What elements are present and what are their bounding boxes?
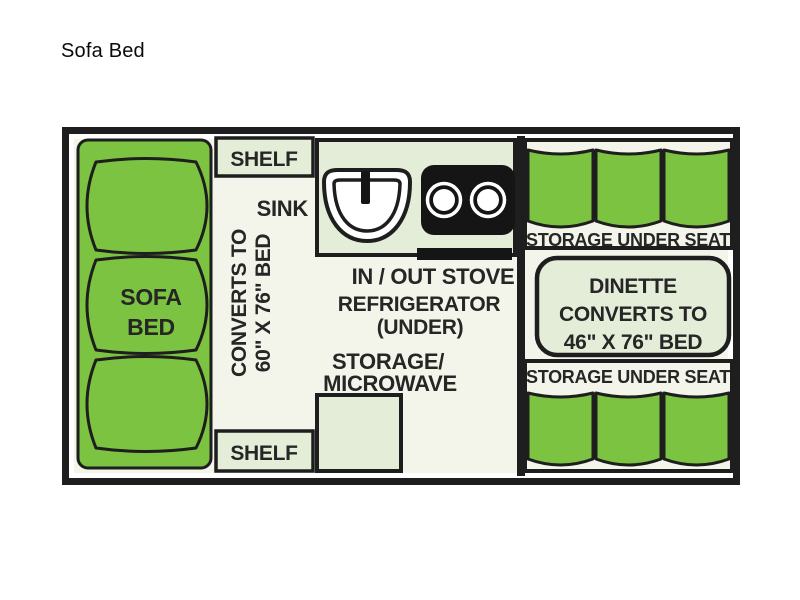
sofa-label: BED [127, 314, 175, 340]
seat-bottom-label: STORAGE UNDER SEAT [526, 367, 730, 387]
storage-microwave-box [317, 395, 401, 471]
sofa-cushion [87, 159, 207, 254]
refrigerator-label: REFRIGERATOR [338, 293, 501, 316]
dinette-label: CONVERTS TO [559, 303, 707, 326]
page-title: Sofa Bed [61, 40, 145, 63]
dinette-seat-top: STORAGE UNDER SEAT [525, 140, 732, 250]
dinette-seat-bottom: STORAGE UNDER SEAT [525, 361, 732, 471]
burner-icon [433, 189, 455, 211]
sofa-cushion [87, 357, 207, 452]
sofa-label: SOFA [120, 284, 181, 310]
seat-cushion [664, 393, 729, 465]
faucet-icon [361, 171, 370, 204]
stove-slideout-bar [417, 248, 512, 260]
sink-label: SINK [257, 196, 309, 221]
seat-cushion [528, 393, 593, 465]
seat-cushion [596, 393, 661, 465]
seat-cushion [528, 150, 593, 227]
seat-top-label: STORAGE UNDER SEAT [526, 230, 730, 250]
sofa-converts-label: CONVERTS TO [228, 229, 251, 377]
sofa-converts-label: 60" X 76" BED [252, 234, 275, 373]
seat-cushion [664, 150, 729, 227]
dinette-label: DINETTE [589, 275, 677, 298]
floorplan-diagram: SOFA BED CONVERTS TO 60" X 76" BED SHELF… [62, 127, 740, 485]
stove-icon [421, 165, 515, 235]
burner-icon [477, 189, 499, 211]
storage-microwave-label: MICROWAVE [323, 371, 457, 396]
shelf-bottom-label: SHELF [230, 442, 298, 465]
dinette-label: 46" X 76" BED [564, 331, 703, 354]
shelf-top-label: SHELF [230, 148, 298, 171]
floorplan-page: { "page": { "title": "Sofa Bed" }, "floo… [0, 0, 800, 600]
seat-cushion [596, 150, 661, 227]
stove-label: IN / OUT STOVE [352, 264, 515, 289]
refrigerator-label: (UNDER) [377, 316, 464, 339]
